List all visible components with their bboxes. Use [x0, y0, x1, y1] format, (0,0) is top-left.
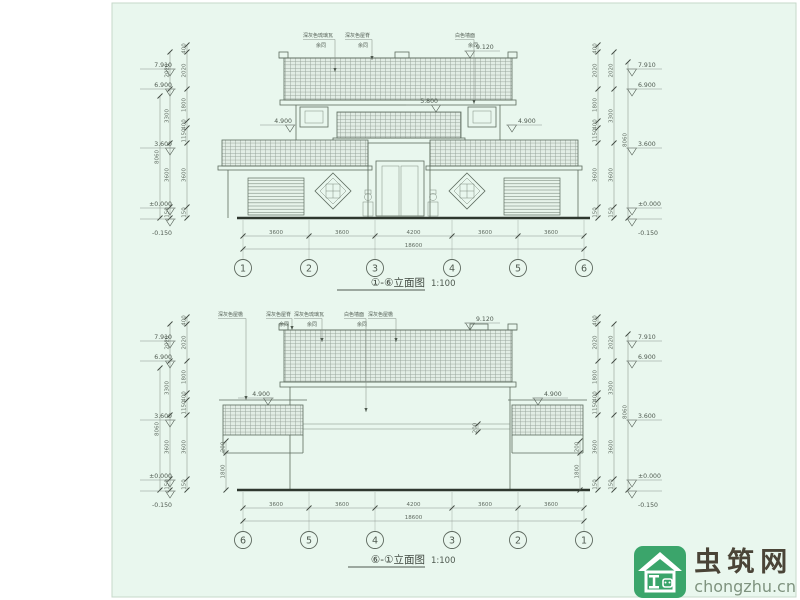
svg-text:4: 4 — [449, 263, 455, 274]
svg-text:400: 400 — [182, 391, 188, 402]
svg-text:2: 2 — [515, 535, 521, 546]
svg-text:150: 150 — [609, 207, 615, 218]
svg-text:6: 6 — [581, 263, 587, 274]
svg-text:2020: 2020 — [593, 335, 599, 349]
svg-text:3600: 3600 — [609, 440, 615, 454]
svg-text:3600: 3600 — [269, 502, 283, 508]
svg-text:±0.000: ±0.000 — [638, 201, 661, 208]
front-elevation-scale: 1:100 — [431, 279, 456, 289]
watermark: 虫筑网 chongzhu.cn — [634, 546, 796, 598]
main-roof-tile-hatch — [284, 58, 512, 100]
right-wing-roof-hatch — [512, 405, 583, 435]
svg-text:1: 1 — [240, 263, 246, 274]
svg-text:深灰色屋脊: 深灰色屋脊 — [266, 311, 291, 318]
svg-text:2020: 2020 — [609, 63, 615, 77]
svg-text:5: 5 — [515, 263, 521, 274]
svg-text:3600: 3600 — [544, 230, 558, 236]
svg-text:5: 5 — [306, 535, 312, 546]
svg-text:400: 400 — [182, 315, 188, 326]
rear-elevation-title: ⑥-①立面图 — [371, 553, 425, 566]
house-icon — [634, 546, 686, 598]
svg-text:400: 400 — [593, 43, 599, 54]
svg-text:3600: 3600 — [165, 440, 171, 454]
svg-text:1800: 1800 — [593, 98, 599, 112]
svg-text:3600: 3600 — [335, 502, 349, 508]
left-wing-roof-hatch — [223, 405, 303, 435]
svg-text:3: 3 — [372, 263, 378, 274]
svg-text:400: 400 — [593, 119, 599, 130]
svg-text:±0.000: ±0.000 — [149, 201, 172, 208]
svg-text:深灰色屋檐: 深灰色屋檐 — [218, 311, 243, 318]
svg-text:余同: 余同 — [468, 42, 478, 49]
svg-text:9.120: 9.120 — [476, 316, 494, 323]
svg-text:深灰色屋脊: 深灰色屋脊 — [345, 32, 370, 39]
right-wing-roof-hatch — [430, 140, 578, 166]
svg-text:深灰色琉璃瓦: 深灰色琉璃瓦 — [294, 311, 324, 318]
svg-text:2020: 2020 — [609, 335, 615, 349]
svg-text:-0.150: -0.150 — [638, 502, 658, 509]
svg-text:1800: 1800 — [182, 370, 188, 384]
svg-text:4.900: 4.900 — [274, 118, 292, 125]
svg-text:9.120: 9.120 — [476, 44, 494, 51]
svg-text:±0.000: ±0.000 — [149, 473, 172, 480]
svg-text:白色墙面: 白色墙面 — [455, 32, 475, 39]
main-roof-tile-hatch — [284, 330, 512, 382]
svg-text:8060: 8060 — [623, 133, 629, 147]
svg-text:200: 200 — [575, 441, 581, 452]
svg-text:1800: 1800 — [182, 98, 188, 112]
svg-text:3600: 3600 — [593, 168, 599, 182]
svg-text:2: 2 — [306, 263, 312, 274]
svg-text:3300: 3300 — [165, 109, 171, 123]
svg-text:8060: 8060 — [623, 405, 629, 419]
svg-text:400: 400 — [593, 315, 599, 326]
svg-text:7.910: 7.910 — [638, 62, 656, 69]
svg-text:-0.150: -0.150 — [152, 230, 172, 237]
svg-text:18600: 18600 — [405, 243, 423, 249]
svg-text:1150: 1150 — [182, 128, 188, 142]
svg-text:-0.150: -0.150 — [638, 230, 658, 237]
svg-text:1150: 1150 — [593, 128, 599, 142]
svg-text:2020: 2020 — [182, 63, 188, 77]
svg-text:1: 1 — [581, 535, 587, 546]
svg-text:400: 400 — [182, 43, 188, 54]
svg-text:4200: 4200 — [407, 502, 421, 508]
svg-text:3600: 3600 — [335, 230, 349, 236]
svg-text:3600: 3600 — [478, 230, 492, 236]
svg-text:6.900: 6.900 — [638, 82, 656, 89]
roller-shutter-door — [248, 178, 304, 215]
svg-text:余同: 余同 — [357, 321, 367, 328]
svg-text:2020: 2020 — [182, 335, 188, 349]
svg-text:150: 150 — [593, 479, 599, 490]
svg-text:6.900: 6.900 — [154, 82, 172, 89]
svg-text:400: 400 — [593, 391, 599, 402]
svg-text:6.900: 6.900 — [154, 354, 172, 361]
front-elevation-title: ①-⑥立面图 — [371, 276, 425, 289]
svg-text:余同: 余同 — [307, 321, 317, 328]
svg-text:1800: 1800 — [221, 464, 227, 478]
canopy-tile-hatch — [337, 112, 461, 138]
svg-text:1150: 1150 — [593, 400, 599, 414]
svg-text:3600: 3600 — [182, 168, 188, 182]
svg-text:150: 150 — [182, 479, 188, 490]
svg-text:7.910: 7.910 — [154, 334, 172, 341]
svg-text:3600: 3600 — [478, 502, 492, 508]
svg-text:200: 200 — [221, 441, 227, 452]
svg-text:3300: 3300 — [609, 109, 615, 123]
svg-text:150: 150 — [593, 207, 599, 218]
svg-text:7.910: 7.910 — [154, 62, 172, 69]
svg-text:3600: 3600 — [544, 502, 558, 508]
svg-text:2020: 2020 — [593, 63, 599, 77]
svg-text:3600: 3600 — [182, 440, 188, 454]
svg-text:3.600: 3.600 — [154, 413, 172, 420]
elevation-drawing-canvas: 202033003600150 400202018004001150360015… — [0, 0, 800, 600]
watermark-site-url: chongzhu.cn — [694, 579, 796, 595]
svg-text:4.900: 4.900 — [518, 118, 536, 125]
watermark-text: 虫筑网 chongzhu.cn — [694, 549, 796, 595]
svg-text:4: 4 — [372, 535, 378, 546]
svg-text:3.600: 3.600 — [154, 141, 172, 148]
svg-text:深灰色屋檐: 深灰色屋檐 — [368, 311, 393, 318]
svg-text:深灰色琉璃瓦: 深灰色琉璃瓦 — [303, 32, 333, 39]
watermark-site-name: 虫筑网 — [694, 549, 796, 576]
svg-text:150: 150 — [165, 479, 171, 490]
drawing-page: 202033003600150 400202018004001150360015… — [0, 0, 800, 600]
watermark-logo-icon — [634, 546, 686, 598]
svg-text:8060: 8060 — [155, 422, 161, 436]
svg-text:4.900: 4.900 — [252, 391, 270, 398]
svg-text:4.900: 4.900 — [544, 391, 562, 398]
svg-text:3300: 3300 — [609, 381, 615, 395]
svg-text:200: 200 — [473, 422, 479, 433]
svg-text:余同: 余同 — [316, 42, 326, 49]
roller-shutter-door — [504, 178, 560, 215]
svg-text:白色墙面: 白色墙面 — [344, 311, 364, 318]
left-wing-roof-hatch — [222, 140, 368, 166]
svg-text:1150: 1150 — [182, 400, 188, 414]
svg-text:-0.150: -0.150 — [152, 502, 172, 509]
svg-text:1800: 1800 — [593, 370, 599, 384]
rear-elevation-scale: 1:100 — [431, 556, 456, 566]
svg-text:3.600: 3.600 — [638, 141, 656, 148]
svg-text:6: 6 — [240, 535, 246, 546]
svg-text:7.910: 7.910 — [638, 334, 656, 341]
svg-text:150: 150 — [609, 479, 615, 490]
svg-text:400: 400 — [182, 119, 188, 130]
svg-text:18600: 18600 — [405, 515, 423, 521]
svg-text:余同: 余同 — [279, 321, 289, 328]
svg-text:150: 150 — [182, 207, 188, 218]
svg-text:5.800: 5.800 — [420, 98, 438, 105]
svg-text:3600: 3600 — [609, 168, 615, 182]
svg-text:3300: 3300 — [165, 381, 171, 395]
svg-text:3600: 3600 — [165, 168, 171, 182]
svg-text:3: 3 — [449, 535, 455, 546]
svg-text:±0.000: ±0.000 — [638, 473, 661, 480]
svg-text:3.600: 3.600 — [638, 413, 656, 420]
svg-text:余同: 余同 — [358, 42, 368, 49]
svg-text:4200: 4200 — [407, 230, 421, 236]
svg-text:150: 150 — [165, 207, 171, 218]
svg-text:8060: 8060 — [155, 150, 161, 164]
svg-text:1800: 1800 — [575, 464, 581, 478]
svg-text:3600: 3600 — [269, 230, 283, 236]
svg-text:6.900: 6.900 — [638, 354, 656, 361]
svg-text:3600: 3600 — [593, 440, 599, 454]
